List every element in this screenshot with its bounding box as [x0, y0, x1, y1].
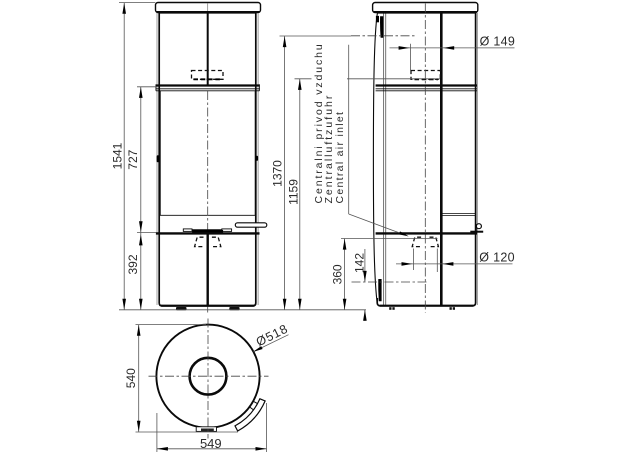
svg-text:Central air inlet: Central air inlet [334, 111, 346, 204]
svg-text:727: 727 [126, 149, 140, 169]
svg-text:1159: 1159 [287, 179, 301, 205]
svg-text:540: 540 [124, 368, 138, 388]
svg-text:549: 549 [200, 436, 222, 451]
svg-text:142: 142 [352, 253, 366, 273]
svg-text:1541: 1541 [111, 142, 125, 169]
svg-text:Ø 149: Ø 149 [480, 34, 516, 48]
svg-text:392: 392 [126, 254, 140, 274]
svg-text:1370: 1370 [271, 160, 285, 187]
svg-text:360: 360 [330, 264, 344, 284]
svg-text:Ø 120: Ø 120 [479, 250, 515, 264]
